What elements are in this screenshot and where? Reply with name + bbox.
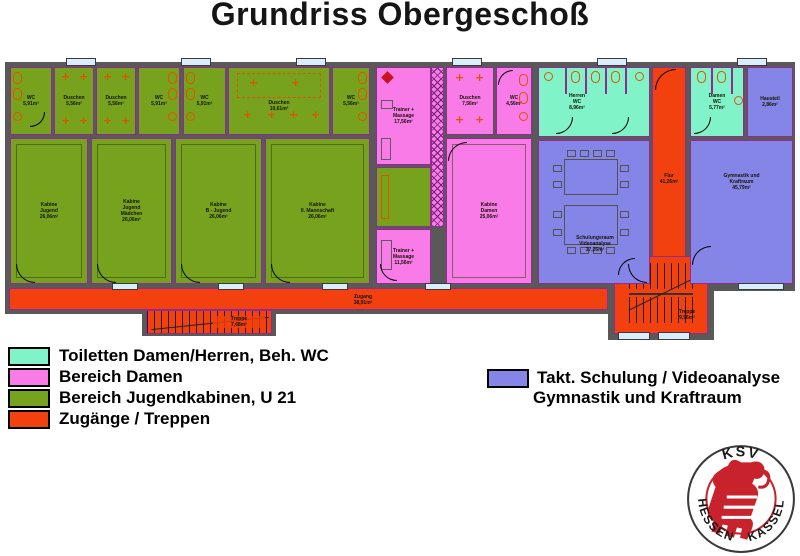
page-title: Grundriss Obergeschoß xyxy=(0,0,800,32)
room-label-wc-c: WC 5,91m² xyxy=(197,95,213,107)
window xyxy=(658,332,690,340)
room-label-trainer1: Trainer + Massage 17,56m² xyxy=(393,107,414,125)
chair xyxy=(567,150,576,157)
room-dusche-c: Duschen 10,61m² + + + + + + xyxy=(228,67,330,135)
chair xyxy=(580,150,589,157)
toilet-icon xyxy=(186,72,195,84)
legend-label-toiletten: Toiletten Damen/Herren, Beh. WC xyxy=(59,346,329,366)
shower-icon: + xyxy=(249,78,258,88)
legend-swatch-schulung xyxy=(487,369,529,388)
room-kabine3: Kabine B - Jugend 26,06m² xyxy=(175,138,262,284)
bench-outline xyxy=(181,144,256,278)
toilet-icon xyxy=(519,92,528,104)
legend-label-damen: Bereich Damen xyxy=(59,367,183,387)
shower-icon: + xyxy=(121,116,130,126)
legend-item-schulung: Takt. Schulung / Videoanalyse Gymnastik … xyxy=(487,368,780,408)
shower-icon: + xyxy=(61,116,70,126)
room-wc-b: WC 5,91m² xyxy=(138,67,180,135)
chair xyxy=(553,165,562,172)
legend-swatch-zugaenge xyxy=(8,410,50,429)
room-kabine4: Kabine II. Mannschaft 26,06m² xyxy=(265,138,370,284)
bench-outline xyxy=(16,144,82,278)
toilet-icon xyxy=(591,71,600,83)
toilet-icon xyxy=(358,88,367,100)
bench-outline xyxy=(452,144,526,278)
toilet-icon xyxy=(13,88,22,100)
legend-label-schulung-line2: Gymnastik und Kraftraum xyxy=(533,388,780,408)
window xyxy=(738,283,784,290)
window xyxy=(181,58,211,66)
shower-icon: + xyxy=(455,115,464,125)
window xyxy=(218,283,244,290)
room-wc-c: WC 5,91m² xyxy=(183,67,226,135)
legend-label-jugend: Bereich Jugendkabinen, U 21 xyxy=(59,388,296,408)
legend-item-jugend: Bereich Jugendkabinen, U 21 xyxy=(8,388,296,408)
bench-outline xyxy=(271,144,364,278)
legend-label-schulung-line1: Takt. Schulung / Videoanalyse xyxy=(537,368,780,388)
shower-icon: + xyxy=(121,72,130,82)
room-green-annex xyxy=(376,167,431,227)
legend-label-zugaenge: Zugänge / Treppen xyxy=(59,409,210,429)
shower-icon: + xyxy=(455,73,464,83)
sink-icon xyxy=(734,96,743,105)
room-hausteil: Hausteil 2,86m² xyxy=(747,67,793,137)
toilet-icon xyxy=(168,88,177,100)
room-label-wc-b: WC 5,91m² xyxy=(151,95,167,107)
room-label-flur: Flur 41,26m² xyxy=(660,173,679,185)
sink-icon xyxy=(168,112,177,121)
window xyxy=(112,283,138,290)
room-dusche-b: Duschen 5,56m² + + + + xyxy=(96,67,136,135)
shower-icon: + xyxy=(291,78,300,88)
room-label-schulungsraum: Schulungsraum Videoanalyse 37,26m² xyxy=(555,235,635,253)
toilet-icon xyxy=(697,71,706,83)
window xyxy=(737,58,767,66)
shower-icon: + xyxy=(79,72,88,82)
shower-icon: + xyxy=(243,110,252,120)
sink-icon xyxy=(13,112,22,121)
stall-partition xyxy=(585,68,587,94)
room-trainer1: Trainer + Massage 17,56m² xyxy=(376,67,431,165)
room-duschen-damen: Duschen 7,56m² + + + + xyxy=(446,67,494,135)
chair xyxy=(620,181,629,188)
desk-icon xyxy=(381,100,393,109)
toilet-icon xyxy=(13,72,22,84)
locker-strip xyxy=(431,67,444,227)
legend-item-damen: Bereich Damen xyxy=(8,367,183,387)
window xyxy=(66,58,96,66)
cabinet-icon xyxy=(381,138,391,160)
chair xyxy=(593,150,602,157)
toilet-icon xyxy=(717,71,726,83)
window xyxy=(296,58,326,66)
room-label-treppe-stairwell: Treppe 9,96m² xyxy=(667,309,707,321)
room-kabine2: Kabine Jugend Mädchen 26,06m² xyxy=(91,138,172,284)
window xyxy=(322,283,348,290)
chair xyxy=(620,165,629,172)
chair xyxy=(620,211,629,218)
window xyxy=(597,58,627,66)
toilet-icon xyxy=(571,71,580,83)
chair xyxy=(553,181,562,188)
shower-icon: + xyxy=(61,72,70,82)
legend-item-toiletten: Toiletten Damen/Herren, Beh. WC xyxy=(8,346,329,366)
sink-icon xyxy=(186,112,195,121)
window xyxy=(425,283,451,290)
room-label-damen-wc: Damen WC 5,77m² xyxy=(709,93,726,111)
room-zugang-corridor: Zugang 38,91m² xyxy=(9,288,608,310)
table xyxy=(564,159,618,195)
sink-icon xyxy=(358,112,367,121)
room-label-wc-a: WC 5,91m² xyxy=(23,95,39,107)
room-treppe-left: Treppe 7,68m² xyxy=(146,310,272,334)
room-kabine1: Kabine Jugend 26,06m² xyxy=(10,138,88,284)
room-label-herren-wc: Herren WC 8,96m² xyxy=(569,93,585,111)
shower-icon: + xyxy=(103,116,112,126)
toilet-icon xyxy=(519,74,528,86)
room-dusche-a: Duschen 5,56m² + + + + xyxy=(54,67,94,135)
room-label-duschen-damen: Duschen 7,56m² xyxy=(459,95,480,107)
urinal-icon xyxy=(635,72,644,81)
toilet-icon xyxy=(168,72,177,84)
toilet-icon xyxy=(611,71,620,83)
stall-partition xyxy=(565,68,567,94)
window xyxy=(452,58,482,66)
bench-icon xyxy=(381,175,389,219)
room-wc-d: WC 5,56m² xyxy=(332,67,370,135)
stall-partition xyxy=(711,68,713,94)
shower-icon: + xyxy=(475,73,484,83)
equipment-icon xyxy=(381,71,394,84)
shower-icon: + xyxy=(311,110,320,120)
legend-swatch-damen xyxy=(8,368,50,387)
chair xyxy=(606,150,615,157)
floorplan-page: Grundriss Obergeschoß Flur 41,26m² Zugan… xyxy=(0,0,800,556)
room-label-treppe-left: Treppe 7,68m² xyxy=(213,316,265,328)
legend-swatch-toiletten xyxy=(8,347,50,366)
ksv-hessen-kassel-logo: KSV HESSEN KASSEL xyxy=(684,440,798,554)
shower-icon: + xyxy=(79,116,88,126)
stall-partition xyxy=(625,68,627,94)
room-label-zugang: Zugang 38,91m² xyxy=(328,294,398,306)
bench-outline xyxy=(97,144,166,278)
room-herren-wc: Herren WC 8,96m² xyxy=(538,67,650,137)
room-label-wc-d: WC 5,56m² xyxy=(343,95,359,107)
room-label-trainer2: Trainer + Massage 11,56m² xyxy=(393,248,414,266)
chair xyxy=(553,211,562,218)
legend-item-zugaenge: Zugänge / Treppen xyxy=(8,409,210,429)
legend-swatch-jugend xyxy=(8,389,50,408)
toilet-icon xyxy=(186,88,195,100)
toilet-icon xyxy=(358,72,367,84)
room-label-dusche-a: Duschen 5,56m² xyxy=(63,95,84,107)
shower-icon: + xyxy=(267,110,276,120)
stall-partition xyxy=(731,68,733,94)
room-label-gymnastik: Gymnastik und Kraftraum 45,79m² xyxy=(723,173,759,191)
window xyxy=(618,332,650,340)
room-label-hausteil: Hausteil 2,86m² xyxy=(760,96,779,108)
stall-partition xyxy=(605,68,607,94)
sink-icon xyxy=(519,112,528,121)
room-label-dusche-b: Duschen 5,56m² xyxy=(105,95,126,107)
shower-icon: + xyxy=(289,110,298,120)
shower-icon: + xyxy=(475,115,484,125)
shower-icon: + xyxy=(103,72,112,82)
sink-icon xyxy=(544,72,553,81)
